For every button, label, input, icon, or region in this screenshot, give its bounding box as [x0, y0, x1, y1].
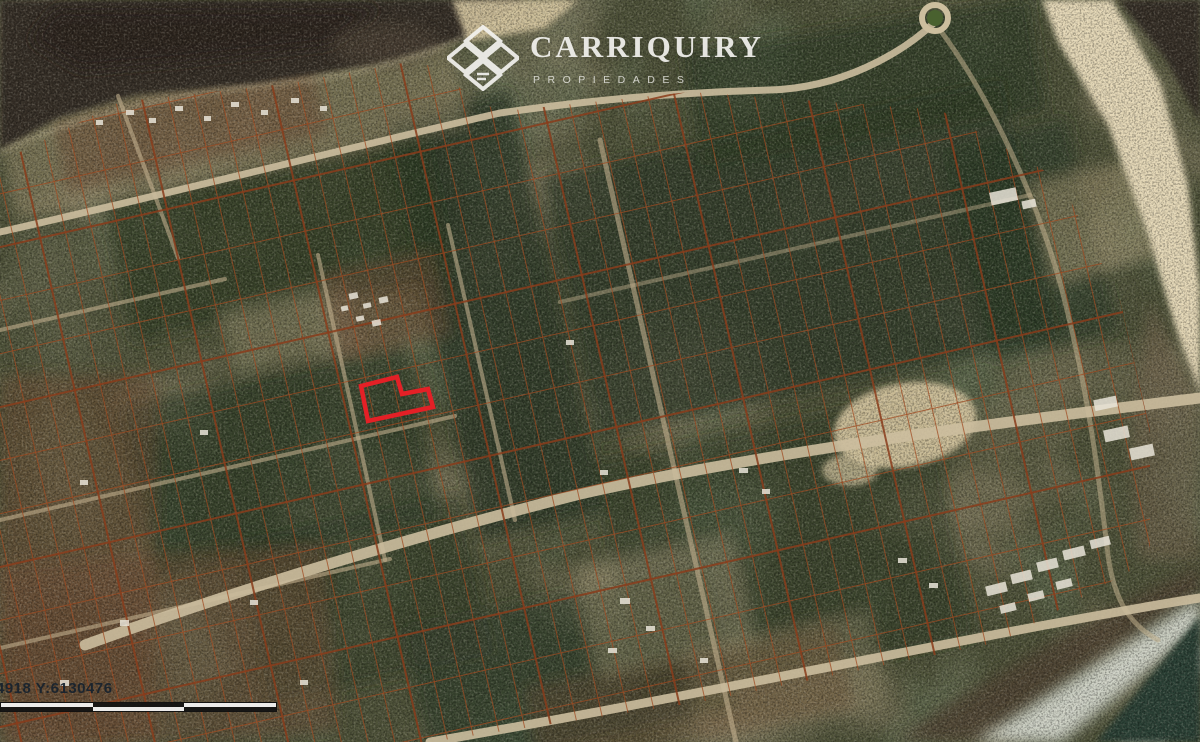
roundabout-green: [927, 10, 943, 26]
listing-map-image: CARRIQUIRY PROPIEDADES 4918 Y:6130476: [0, 0, 1200, 742]
satellite-map: [0, 0, 1200, 742]
coordinate-readout: 4918 Y:6130476: [0, 680, 113, 697]
scale-bar: [0, 702, 277, 712]
scale-bar-row-bottom: [1, 707, 276, 711]
